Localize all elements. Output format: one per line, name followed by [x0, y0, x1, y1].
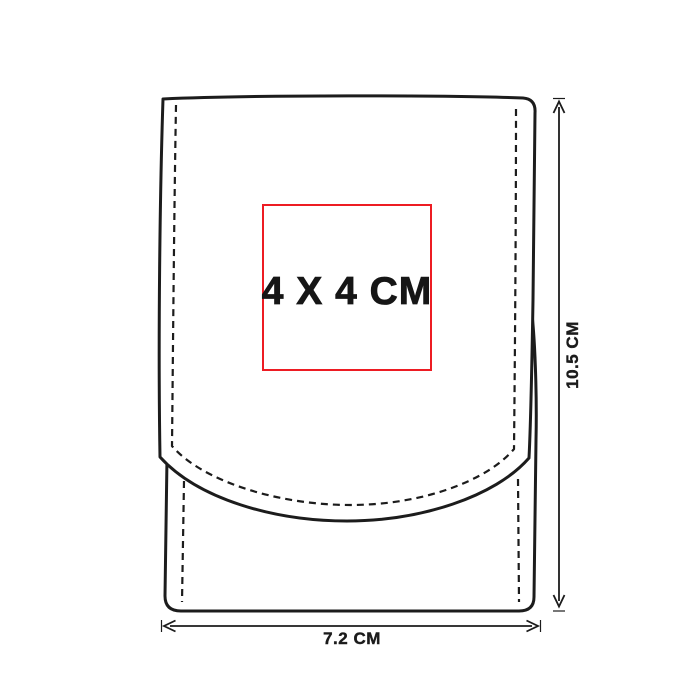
print-area-box: 4 X 4 CM — [262, 204, 432, 371]
height-dimension-label: 10.5 CM — [563, 321, 583, 389]
print-area-size-label: 4 X 4 CM — [262, 262, 433, 314]
product-mockup-diagram: 4 X 4 CM 10.5 CM 7.2 CM — [0, 0, 700, 700]
width-dimension-label: 7.2 CM — [252, 629, 452, 649]
